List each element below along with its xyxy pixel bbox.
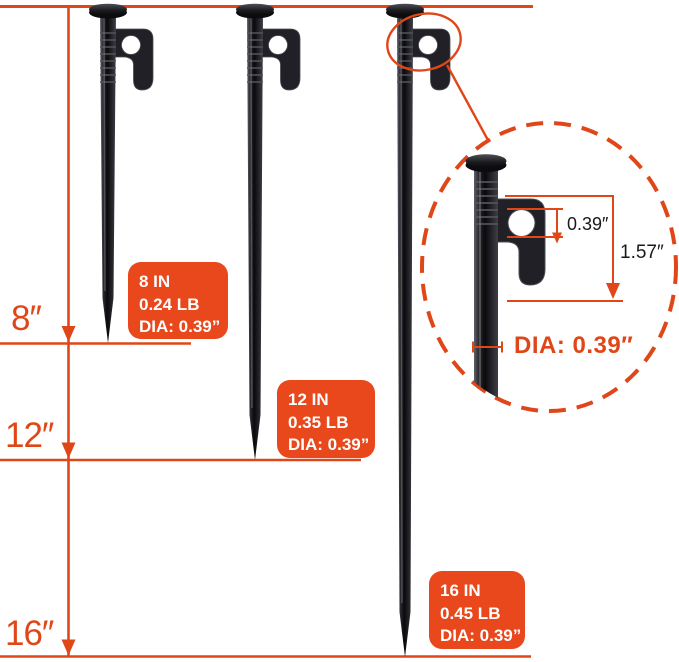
ruler-tick-16in: 16″ <box>5 616 53 651</box>
spec-weight: 0.35 LB <box>288 412 367 435</box>
spec-weight: 0.45 LB <box>440 603 517 626</box>
measurement-lines <box>0 7 533 658</box>
ruler-tick-12in: 12″ <box>5 418 53 453</box>
arrow-down-16in-icon <box>62 640 76 656</box>
spec-diameter: DIA: 0.39” <box>288 434 367 457</box>
arrow-down-12in-icon <box>62 443 76 459</box>
detail-head-length: 1.57″ <box>620 243 664 262</box>
spec-length: 16 IN <box>440 580 517 603</box>
tent-stake-16in-icon <box>386 4 450 657</box>
magnified-head-detail-icon <box>422 123 676 411</box>
spec-box-12in: 12 IN 0.35 LB DIA: 0.39” <box>277 380 375 458</box>
ruler-tick-8in: 8″ <box>11 301 41 336</box>
spec-diameter: DIA: 0.39” <box>139 316 220 339</box>
detail-hole-size: 0.39″ <box>567 215 608 233</box>
spec-length: 8 IN <box>139 271 220 294</box>
detail-dimension-arrowheads <box>552 233 620 300</box>
spec-length: 12 IN <box>288 389 367 412</box>
detail-shaft-diameter: DIA: 0.39″ <box>514 334 633 358</box>
product-dimension-diagram: 8″ 12″ 16″ 8 IN 0.24 LB DIA: 0.39” 12 IN… <box>0 0 679 662</box>
arrow-down-length-icon <box>606 283 620 299</box>
arrow-down-8in-icon <box>62 326 76 342</box>
spec-diameter: DIA: 0.39” <box>440 625 517 648</box>
diagram-artwork <box>0 0 679 662</box>
spec-box-16in: 16 IN 0.45 LB DIA: 0.39” <box>429 571 525 649</box>
spec-weight: 0.24 LB <box>139 294 220 317</box>
callout-leader-line <box>447 65 489 142</box>
spec-box-8in: 8 IN 0.24 LB DIA: 0.39” <box>128 262 228 339</box>
magnified-stake-head <box>466 154 546 420</box>
